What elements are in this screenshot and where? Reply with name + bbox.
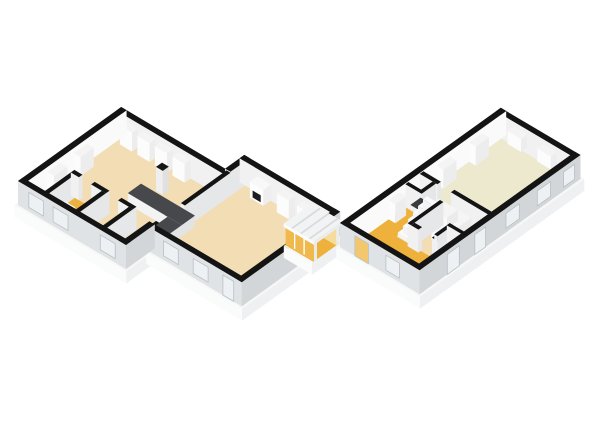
mullion <box>294 233 295 250</box>
right-wing <box>336 108 584 309</box>
corridor-wall <box>411 223 422 253</box>
mullion <box>303 238 304 255</box>
floorplan-viewport <box>0 0 600 424</box>
left-wing <box>14 107 344 321</box>
wc-wall <box>71 170 83 200</box>
column <box>156 163 169 195</box>
floorplan-svg <box>0 0 600 424</box>
